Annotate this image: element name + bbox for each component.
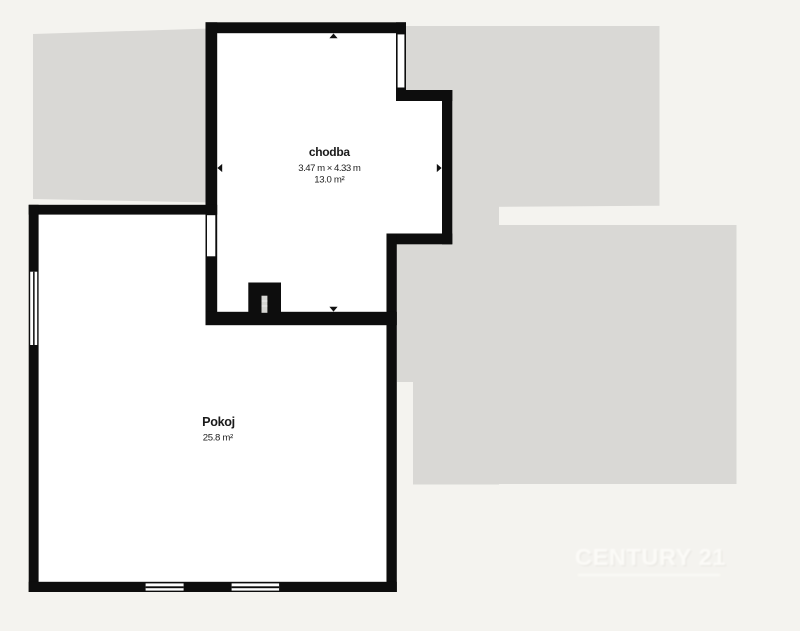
svg-text:3.47 m × 4.33 m: 3.47 m × 4.33 m xyxy=(298,163,361,174)
svg-text:Pokoj: Pokoj xyxy=(202,415,235,429)
svg-text:chodba: chodba xyxy=(309,145,350,159)
svg-text:CENTURY 21: CENTURY 21 xyxy=(575,544,726,570)
svg-text:13.0 m²: 13.0 m² xyxy=(314,175,345,186)
svg-text:25.8 m²: 25.8 m² xyxy=(203,433,234,444)
